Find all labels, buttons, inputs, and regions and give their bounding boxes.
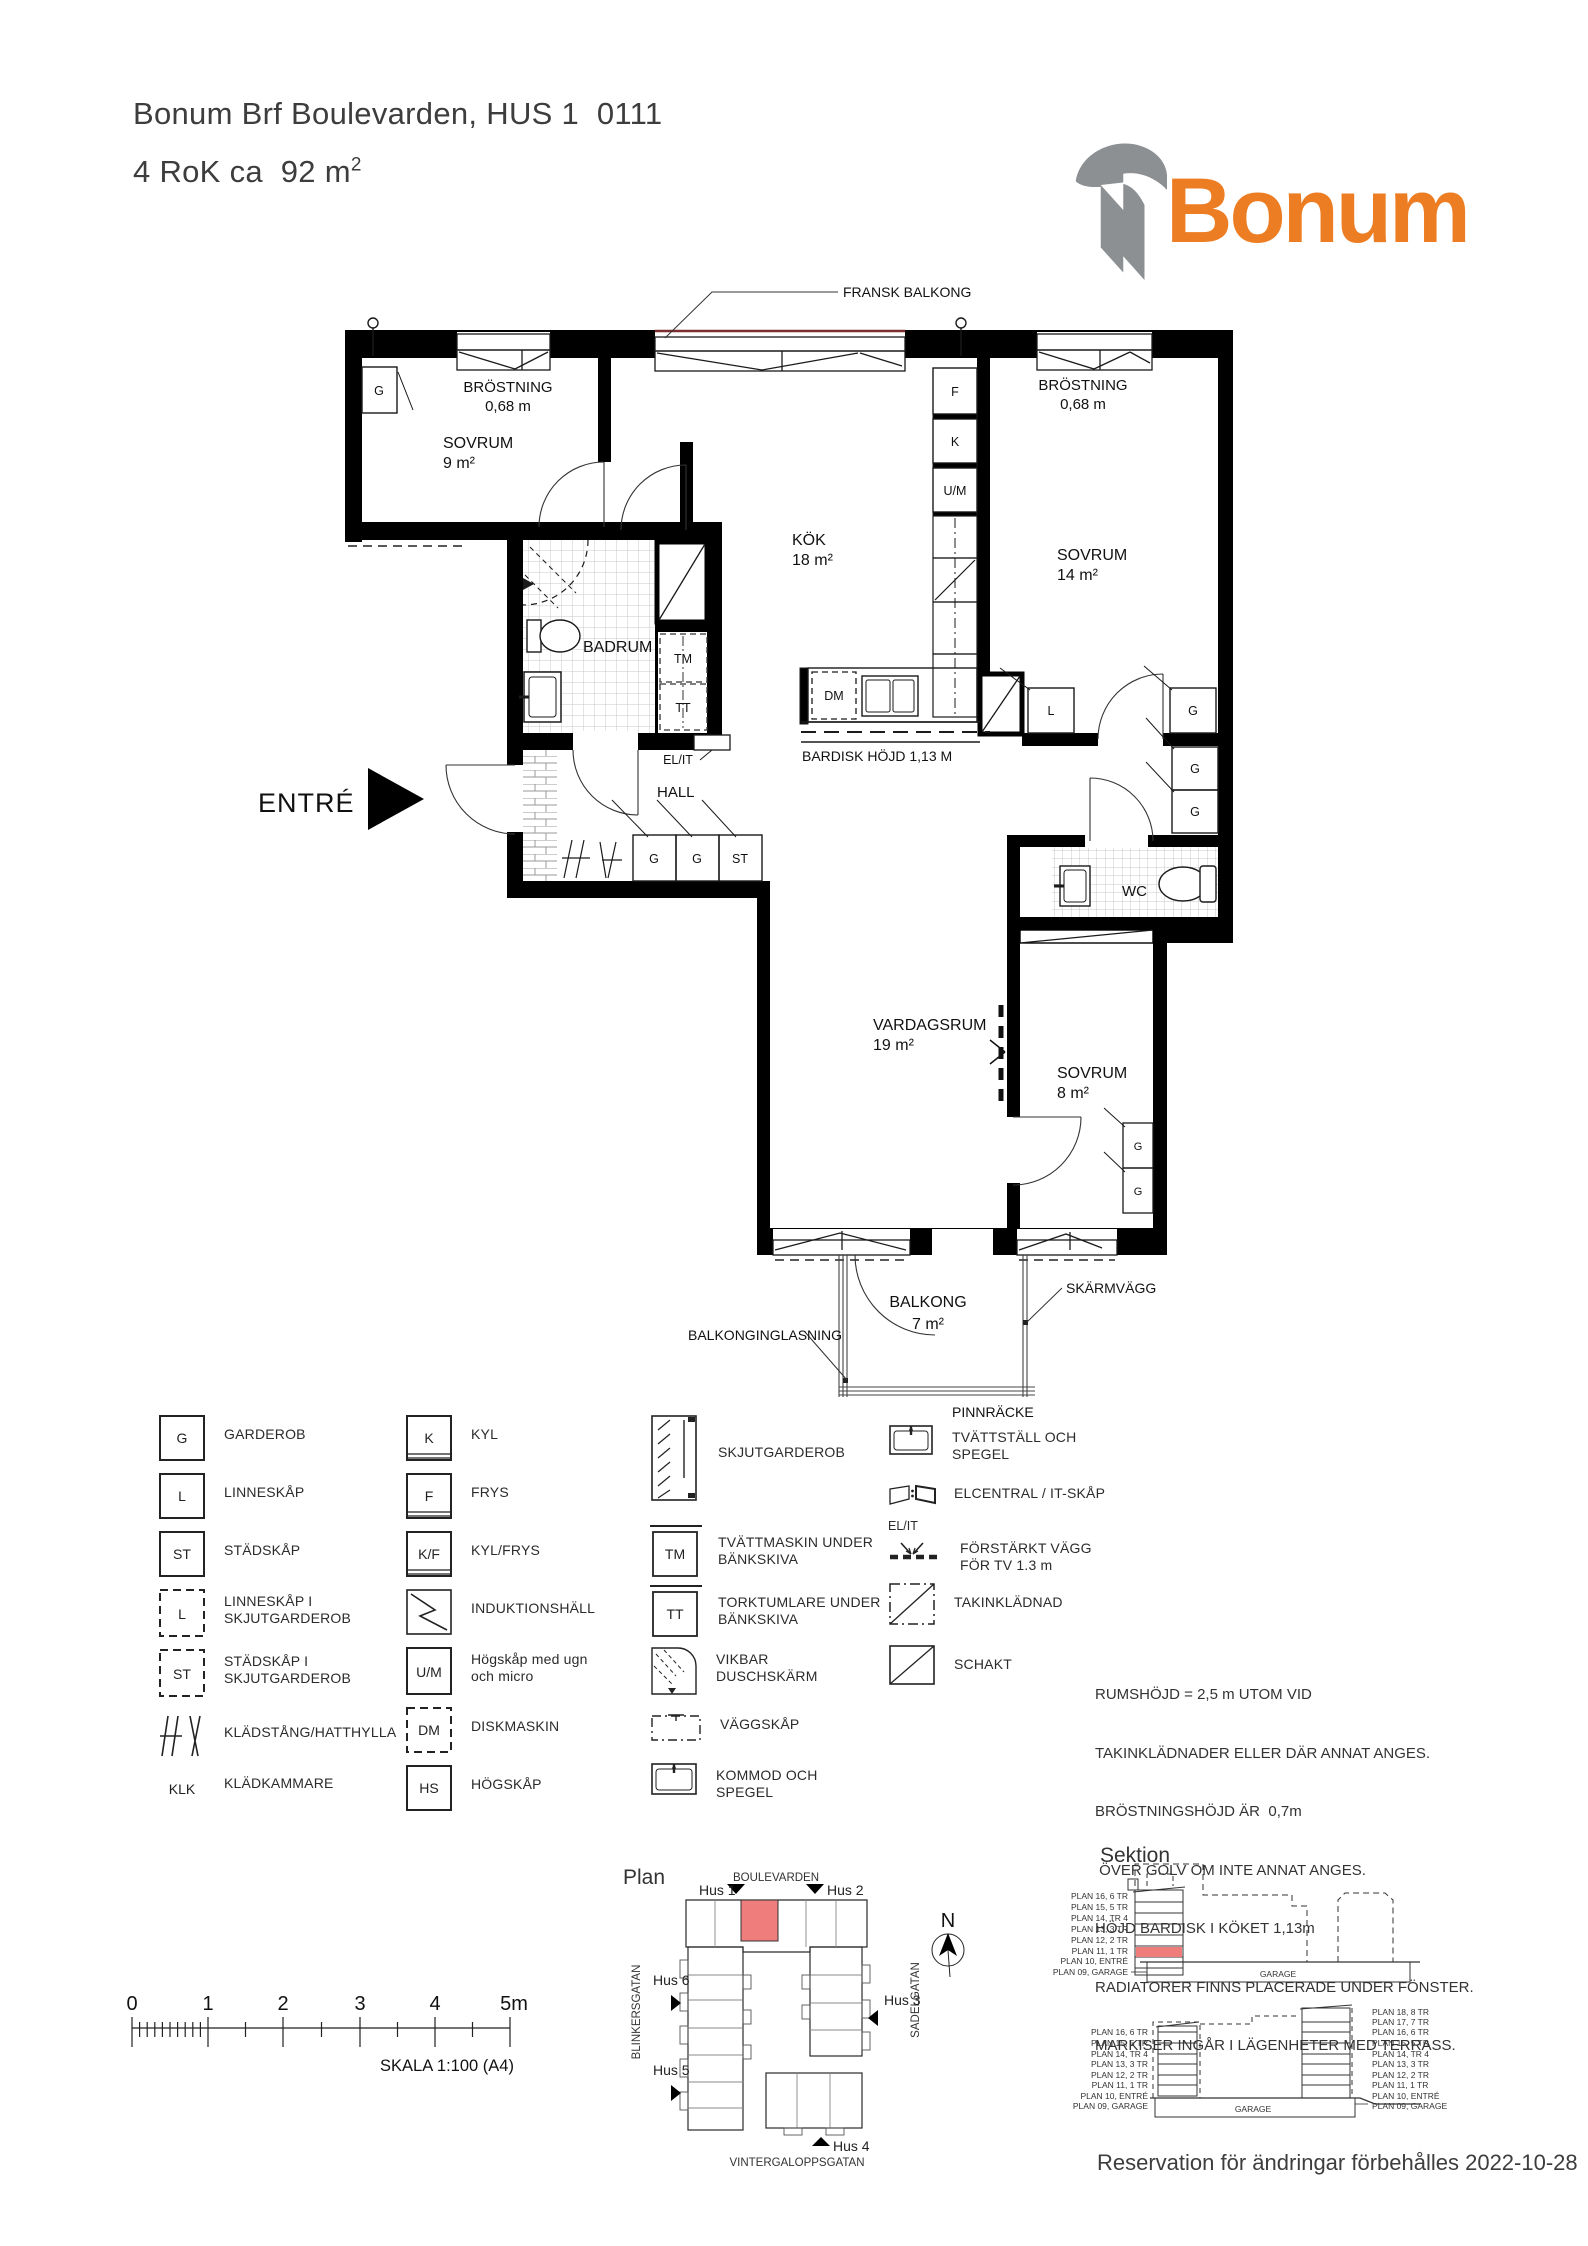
linneskap-symbol: L: [158, 1472, 208, 1522]
kyl-symbol: K: [405, 1414, 455, 1464]
sovrum14-label: SOVRUM: [1057, 547, 1127, 564]
sovrum9-label: SOVRUM: [443, 435, 513, 452]
svg-text:TT: TT: [666, 1606, 684, 1622]
legend-forstarkt-vagg: FÖRSTÄRKT VÄGGFÖR TV 1.3 m: [888, 1540, 1092, 1574]
street-top-label: BOULEVARDEN: [733, 1872, 819, 1884]
svg-text:14 m²: 14 m²: [1057, 567, 1099, 584]
svg-text:G: G: [1134, 1186, 1143, 1198]
hus6-label: Hus 6: [653, 1972, 690, 1988]
svg-text:DM: DM: [824, 689, 843, 703]
svg-text:N: N: [941, 1910, 955, 1932]
svg-text:G: G: [177, 1430, 188, 1446]
svg-text:1: 1: [202, 1993, 213, 2015]
svg-text:L: L: [178, 1606, 186, 1622]
svg-text:G: G: [692, 852, 702, 866]
wc-label: WC: [1122, 883, 1147, 900]
markis-dashes: [348, 546, 1115, 1260]
ugn-micro-symbol: U/M: [405, 1646, 455, 1698]
svg-text:KLK: KLK: [169, 1781, 196, 1797]
svg-text:0,68 m: 0,68 m: [485, 398, 531, 415]
svg-text:K/F: K/F: [418, 1546, 440, 1562]
vardagsrum-label: VARDAGSRUM: [873, 1017, 987, 1034]
balkonginglasning-label: BALKONGINGLASNING: [688, 1327, 842, 1343]
svg-text:F: F: [951, 385, 959, 399]
svg-text:2: 2: [277, 1993, 288, 2015]
svg-text:19 m²: 19 m²: [873, 1037, 915, 1054]
hus2-label: Hus 2: [827, 1882, 864, 1898]
pinnracke-label: PINNRÄCKE: [952, 1404, 1034, 1420]
kylfrys-symbol: K/F: [405, 1530, 455, 1580]
legend-kyl: K KYL: [405, 1414, 498, 1464]
svg-text:L: L: [1048, 704, 1055, 718]
svg-text:HS: HS: [419, 1780, 438, 1796]
svg-text:F: F: [425, 1488, 434, 1504]
legend-linneskap: L LINNESKÅP: [158, 1472, 304, 1522]
diskmaskin-symbol: DM: [405, 1706, 455, 1756]
svg-text:G: G: [1188, 704, 1198, 718]
klk-symbol: KLK: [158, 1773, 208, 1803]
brostning-left-label: BRÖSTNING: [463, 378, 552, 396]
kladstang-symbol: [158, 1712, 208, 1760]
elcentral-symbol: [888, 1482, 938, 1508]
notes-block: RUMSHÖJD = 2,5 m UTOM VID TAKINKLÄDNADER…: [1095, 1646, 1474, 2095]
svg-text:0: 0: [126, 1993, 137, 2015]
schakt-legend-symbol: [888, 1644, 938, 1688]
hogskap-symbol: HS: [405, 1764, 455, 1814]
legend-kylfrys: K/F KYL/FRYS: [405, 1530, 540, 1580]
legend-takinkladnad: TAKINKLÄDNAD: [888, 1582, 1063, 1628]
wall-openings: [457, 331, 1152, 1255]
svg-text:7 m²: 7 m²: [912, 1316, 945, 1333]
stadskap-skjut-symbol: ST: [158, 1648, 208, 1700]
induktionshall-symbol: [405, 1588, 455, 1638]
garderob-symbol: G: [158, 1414, 208, 1464]
svg-text:ST: ST: [173, 1546, 191, 1562]
svg-text:4: 4: [429, 1993, 440, 2015]
svg-text:ST: ST: [732, 852, 748, 866]
street-bottom-label: VINTERGALOPPSGATAN: [729, 2157, 864, 2169]
legend-elcentral: EL/IT ELCENTRAL / IT-SKÅP: [888, 1482, 1105, 1533]
legend-tvattmaskin: TM TVÄTTMASKIN UNDERBÄNKSKIVA: [650, 1524, 873, 1580]
svg-text:ST: ST: [173, 1666, 191, 1682]
legend-vaggskap: VÄGGSKÅP: [650, 1712, 799, 1744]
kok-label: KÖK: [792, 531, 826, 549]
svg-text:DM: DM: [418, 1722, 440, 1738]
svg-text:GARAGE: GARAGE: [1235, 2104, 1272, 2114]
svg-text:K: K: [951, 435, 960, 449]
svg-text:0,68 m: 0,68 m: [1060, 396, 1106, 413]
bardisk-label: BARDISK HÖJD 1,13 M: [802, 747, 952, 764]
hus1-label: Hus 1: [699, 1882, 736, 1898]
legend-torktumlare: TT TORKTUMLARE UNDERBÄNKSKIVA: [650, 1584, 881, 1640]
entre-label: ENTRÉ: [258, 788, 355, 818]
svg-text:G: G: [1134, 1141, 1143, 1153]
elit-cabinet: [694, 735, 730, 760]
svg-text:5m: 5m: [500, 1993, 528, 2015]
badrum-label: BADRUM: [583, 639, 652, 656]
site-plan: Plan: [623, 1866, 964, 2169]
svg-text:9 m²: 9 m²: [443, 455, 476, 472]
skala-caption: SKALA 1:100 (A4): [380, 2057, 514, 2075]
frys-symbol: F: [405, 1472, 455, 1522]
svg-text:8 m²: 8 m²: [1057, 1085, 1090, 1102]
elit-label: EL/IT: [663, 753, 693, 767]
sovrum8-closets: [1104, 1108, 1153, 1213]
svg-text:G: G: [374, 384, 384, 398]
revision-note: Reservation för ändringar förbehålles 20…: [1097, 2150, 1578, 2176]
walls: [345, 330, 1233, 1255]
forstarkt-vagg-marker: [990, 1005, 1005, 1103]
svg-text:U/M: U/M: [416, 1664, 442, 1680]
linneskap-skjut-symbol: L: [158, 1588, 208, 1640]
hus5-label: Hus 5: [653, 2062, 690, 2078]
leader-lines: [665, 292, 1062, 1380]
tvattmaskin-symbol: TM: [650, 1524, 702, 1580]
svg-text:TM: TM: [674, 652, 692, 666]
legend-linneskap-skjut: L LINNESKÅP ISKJUTGARDEROB: [158, 1588, 351, 1640]
svg-text:TM: TM: [665, 1546, 685, 1562]
svg-text:TT: TT: [675, 701, 691, 715]
legend-hogskap-ugn: U/M Högskåp med ugnoch micro: [405, 1646, 588, 1698]
legend-kladstang: KLÄDSTÅNG/HATTHYLLA: [158, 1712, 396, 1760]
sovrum14-closets: [1000, 666, 1218, 833]
legend-garderob: G GARDEROB: [158, 1414, 306, 1464]
legend-kladkammare: KLK KLÄDKAMMARE: [158, 1773, 334, 1803]
svg-text:G: G: [1190, 762, 1200, 776]
legend-kommod: KOMMOD OCHSPEGEL: [650, 1762, 818, 1801]
legend-induktionshall: INDUKTIONSHÄLL: [405, 1588, 595, 1638]
svg-text:G: G: [649, 852, 659, 866]
torktumlare-symbol: TT: [650, 1584, 702, 1640]
kommod-symbol: [650, 1762, 700, 1798]
balkong-label: BALKONG: [889, 1294, 966, 1311]
vaggskap-symbol: [650, 1712, 704, 1744]
stadskap-symbol: ST: [158, 1530, 208, 1580]
sovrum8-label: SOVRUM: [1057, 1065, 1127, 1082]
legend-stadskap-skjut: ST STÄDSKÅP ISKJUTGARDEROB: [158, 1648, 351, 1700]
svg-text:18 m²: 18 m²: [792, 552, 834, 569]
legend-hogskap: HS HÖGSKÅP: [405, 1764, 542, 1814]
sovrum9-wardrobe: [362, 367, 413, 413]
svg-text:G: G: [1190, 805, 1200, 819]
svg-text:L: L: [178, 1488, 186, 1504]
duschskarm-symbol: [650, 1646, 700, 1698]
fransk-balkong-label: FRANSK BALKONG: [843, 284, 971, 300]
compass-icon: N: [932, 1910, 964, 1977]
legend-frys: F FRYS: [405, 1472, 509, 1522]
legend-skjutgarderob: SKJUTGARDEROB: [650, 1414, 845, 1504]
svg-text:K: K: [424, 1430, 434, 1446]
legend-tvattstall: TVÄTTSTÄLL OCHSPEGEL: [888, 1424, 1076, 1463]
skarmvagg-label: SKÄRMVÄGG: [1066, 1280, 1156, 1296]
hus4-label: Hus 4: [833, 2138, 870, 2154]
floorplan-page: Bonum Brf Boulevarden, HUS 1 0111 4 RoK …: [0, 0, 1588, 2246]
takinkladnad-symbol: [888, 1582, 938, 1628]
scale-bar: [132, 2017, 510, 2047]
legend-schakt: SCHAKT: [888, 1644, 1012, 1688]
street-left-label: BLINKERSGATAN: [631, 1965, 643, 2060]
siteplan-title: Plan: [623, 1866, 665, 1889]
entre-arrow-icon: [368, 768, 424, 830]
hall-wardrobes: [562, 800, 762, 881]
highlighted-unit: [741, 1900, 778, 1941]
skjutgarderob-symbol: [650, 1414, 702, 1504]
brostning-right-label: BRÖSTNING: [1038, 376, 1127, 394]
scale-bar-labels: 0 1 2 3 4 5m SKALA 1:100 (A4): [126, 1993, 527, 2075]
legend-duschskarm: VIKBARDUSCHSKÄRM: [650, 1646, 818, 1698]
svg-text:U/M: U/M: [944, 484, 967, 498]
street-right-label: SADELGATAN: [910, 1962, 922, 2038]
legend-stadskap: ST STÄDSKÅP: [158, 1530, 300, 1580]
svg-text:PLAN 09, GARAGE: PLAN 09, GARAGE: [1073, 2101, 1148, 2111]
svg-text:PLAN 09, GARAGE: PLAN 09, GARAGE: [1372, 2101, 1447, 2111]
floor-finishes: [523, 540, 1218, 917]
tvattstall-symbol: [888, 1424, 936, 1458]
forstarkt-vagg-symbol: [888, 1540, 944, 1568]
hall-label: HALL: [657, 784, 695, 801]
tm-tt-units: [660, 634, 707, 730]
svg-text:3: 3: [354, 1993, 365, 2015]
legend-diskmaskin: DM DISKMASKIN: [405, 1706, 559, 1756]
